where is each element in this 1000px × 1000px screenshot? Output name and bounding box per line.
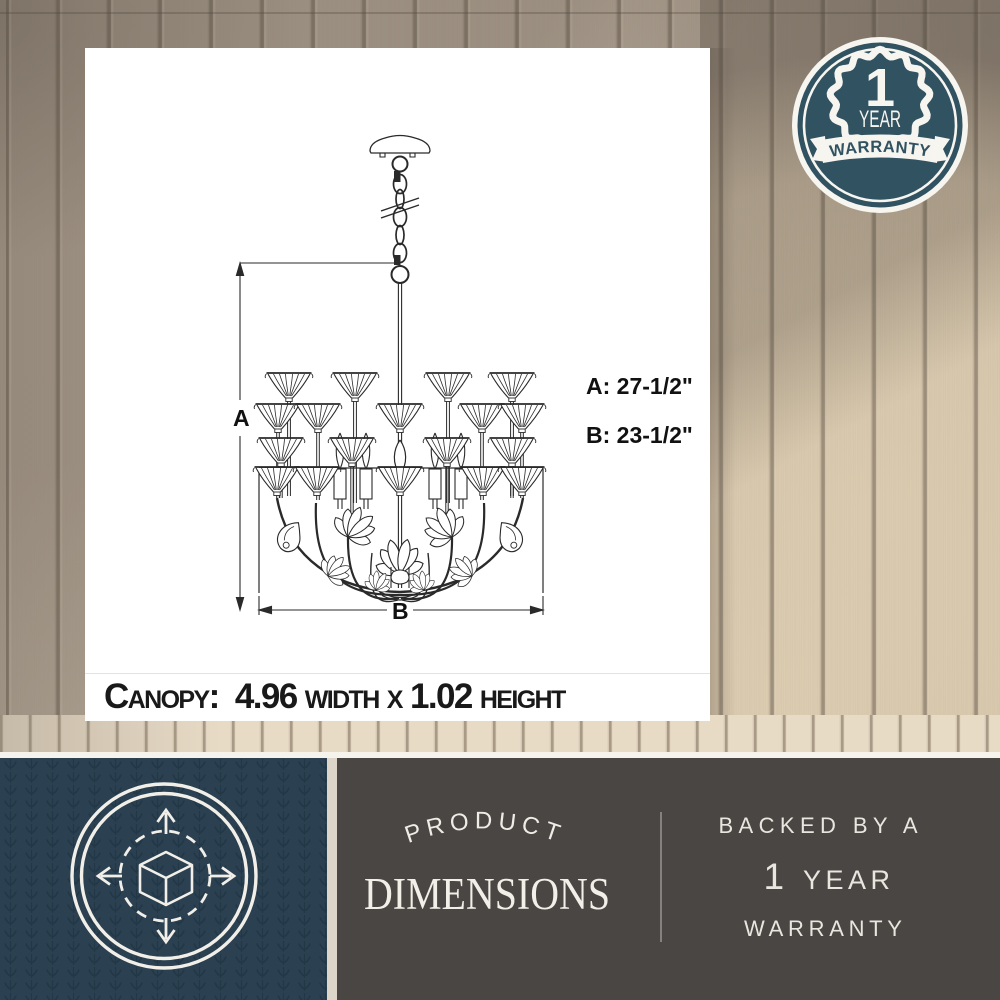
svg-text:B: 23-1/2": B: 23-1/2"	[586, 422, 693, 448]
svg-text:PRODUCT: PRODUCT	[401, 807, 568, 848]
svg-text:DIMENSIONS: DIMENSIONS	[364, 869, 610, 919]
svg-text:B: B	[392, 598, 409, 624]
svg-text:YEAR: YEAR	[859, 106, 901, 133]
svg-text:A: A	[233, 405, 250, 431]
svg-text:A: 27-1/2": A: 27-1/2"	[586, 373, 693, 399]
